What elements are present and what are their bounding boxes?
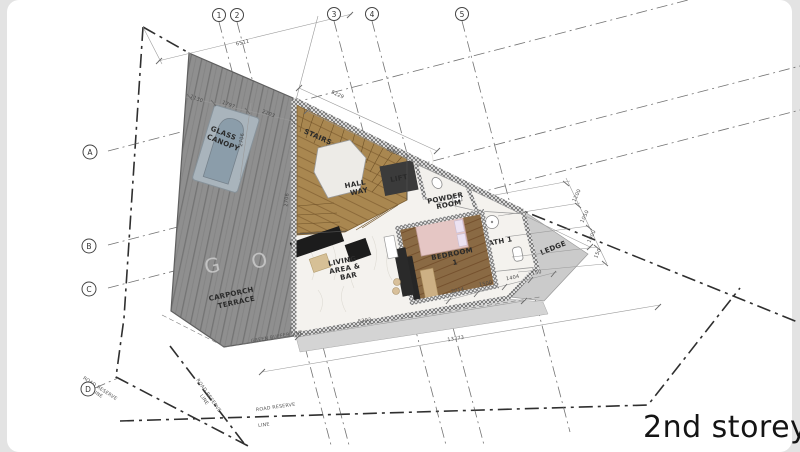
svg-text:4: 4 [370, 10, 375, 19]
svg-text:150: 150 [593, 248, 603, 260]
shower-drain-icon [491, 221, 493, 223]
grid-row-b: B [82, 239, 96, 253]
bar-stool [393, 288, 400, 295]
svg-text:6511: 6511 [235, 38, 250, 47]
grid-col-3: 3 [328, 8, 341, 21]
svg-text:D: D [85, 385, 91, 394]
svg-text:2: 2 [235, 11, 240, 20]
svg-text:A: A [87, 148, 93, 157]
svg-text:1: 1 [217, 11, 222, 20]
bar-stool [394, 279, 401, 286]
svg-text:1000: 1000 [587, 229, 598, 244]
svg-text:B: B [86, 242, 91, 251]
sheet-title: 2nd storey [643, 410, 800, 445]
svg-text:3: 3 [332, 10, 337, 19]
svg-text:5229: 5229 [330, 90, 345, 101]
grid-col-5: 5 [456, 8, 469, 21]
svg-text:5: 5 [460, 10, 465, 19]
road-reserve-label-2: ROAD RESERVE LINE [190, 378, 224, 419]
grid-col-2: 2 [231, 9, 244, 22]
svg-text:1050: 1050 [580, 209, 591, 224]
grid-col-4: 4 [366, 8, 379, 21]
grid-row-a: A [83, 145, 97, 159]
grid-col-1: 1 [213, 9, 226, 22]
svg-text:C: C [86, 285, 91, 294]
svg-text:13373: 13373 [447, 335, 465, 344]
svg-text:1200: 1200 [572, 188, 583, 203]
grid-row-c: C [82, 282, 96, 296]
lift: LIFT [379, 160, 418, 196]
floor-plan-drawing: GLASS CANOPY G O CARPORCH TERRACE LEDGE … [0, 0, 800, 452]
grid-row-d: D [81, 382, 95, 396]
